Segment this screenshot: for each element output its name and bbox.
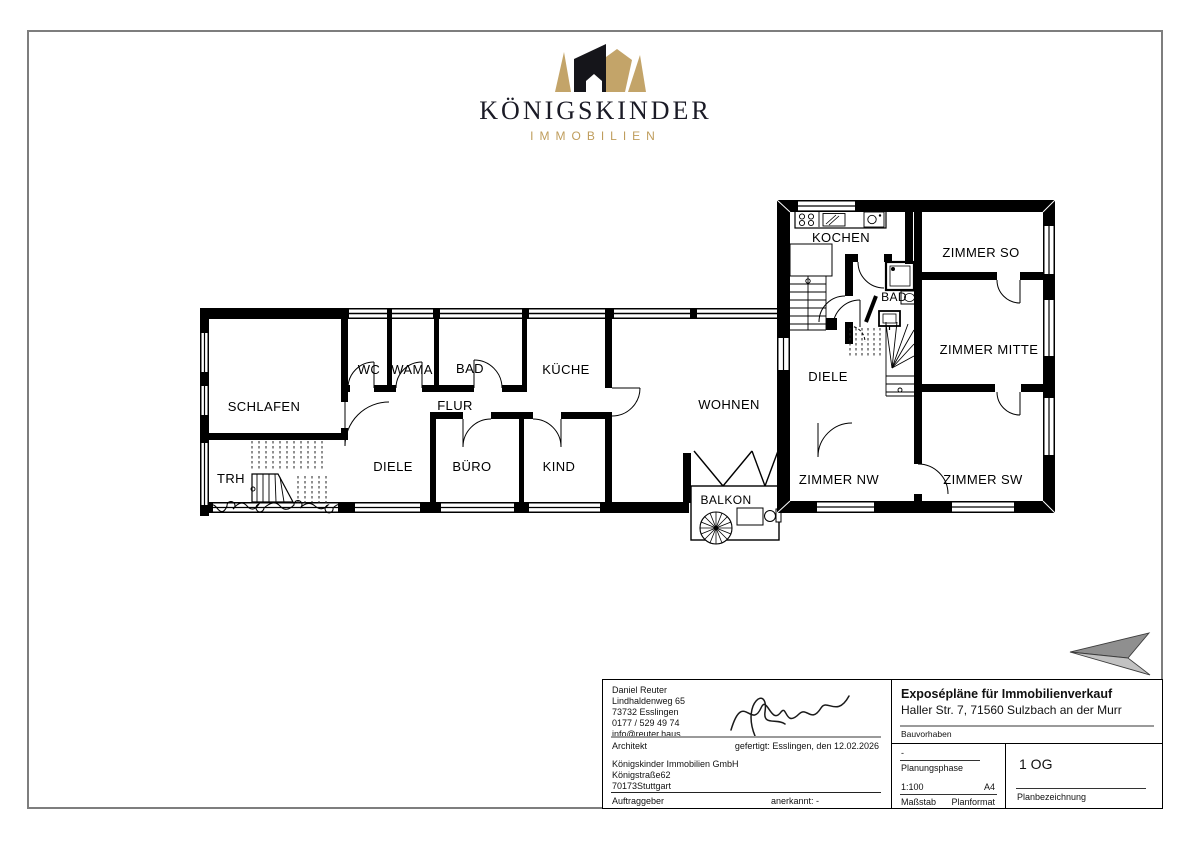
format-label: Planformat	[951, 797, 995, 807]
architect-street: Lindhaldenweg 65	[612, 696, 685, 707]
room-label-bad-right: BAD	[881, 290, 907, 304]
client-label: Auftraggeber	[612, 796, 664, 806]
room-label-zimmer-mitte: ZIMMER MITTE	[940, 342, 1039, 357]
signature-divider	[611, 736, 881, 738]
room-label-buero: BÜRO	[452, 459, 491, 474]
title-block-meta: - Planungsphase 1:100 A4 Maßstab Planfor…	[892, 743, 1162, 808]
plan-name-label: Planbezeichnung	[1017, 792, 1086, 802]
architect-name: Daniel Reuter	[612, 685, 685, 696]
architect-label: Architekt	[612, 741, 647, 751]
phase-scale-cell: - Planungsphase 1:100 A4 Maßstab Planfor…	[892, 744, 1006, 808]
client-street: Königstraße62	[612, 770, 739, 781]
project-title: Exposépläne für Immobilienverkauf	[901, 687, 1112, 701]
architect-email: info@reuter.haus	[612, 729, 685, 740]
scale-divider	[900, 794, 997, 795]
room-label-zimmer-so: ZIMMER SO	[942, 245, 1019, 260]
client-name: Königskinder Immobilien GmbH	[612, 759, 739, 770]
plan-name-cell: 1 OG Planbezeichnung	[1006, 744, 1162, 808]
approved-note: anerkannt: -	[771, 796, 819, 806]
room-label-wc: WC	[358, 362, 380, 377]
room-label-kind: KIND	[543, 459, 576, 474]
room-label-balkon: BALKON	[700, 493, 751, 507]
room-label-schlafen: SCHLAFEN	[228, 399, 301, 414]
room-label-bad-left: BAD	[456, 361, 484, 376]
phase-label: Planungsphase	[901, 763, 963, 773]
scale-label: Maßstab	[901, 797, 936, 807]
title-block-architect-section: Daniel Reuter Lindhaldenweg 65 73732 Ess…	[603, 680, 892, 808]
north-arrow-icon	[1070, 633, 1150, 675]
plan-name-value: 1 OG	[1019, 756, 1052, 772]
title-block-project-section: Exposépläne für Immobilienverkauf Haller…	[892, 680, 1162, 808]
room-label-diele-right: DIELE	[808, 369, 848, 384]
room-label-wohnen: WOHNEN	[698, 397, 760, 412]
spiral-stair-icon	[700, 512, 732, 544]
architect-city: 73732 Esslingen	[612, 707, 685, 718]
project-divider	[900, 725, 1154, 727]
room-label-wama: WAMA	[391, 362, 433, 377]
room-label-diele-left: DIELE	[373, 459, 413, 474]
project-label: Bauvorhaben	[901, 729, 952, 739]
trh-staircase	[251, 474, 293, 502]
client-divider	[611, 792, 881, 793]
phase-divider	[900, 760, 980, 761]
room-label-trh: TRH	[217, 471, 245, 486]
main-staircase	[790, 244, 832, 330]
project-address: Haller Str. 7, 71560 Sulzbach an der Mur…	[901, 703, 1122, 717]
room-label-flur: FLUR	[437, 398, 473, 413]
room-label-zimmer-sw: ZIMMER SW	[943, 472, 1023, 487]
room-label-kueche: KÜCHE	[542, 362, 590, 377]
headroom-dashed-lines	[850, 328, 880, 358]
room-label-kochen: KOCHEN	[812, 230, 870, 245]
kitchen-counter	[795, 211, 886, 228]
plan-name-divider	[1016, 788, 1146, 789]
format-value: A4	[984, 782, 995, 792]
phase-value: -	[901, 748, 904, 758]
winder-stair	[886, 322, 914, 396]
title-block: Daniel Reuter Lindhaldenweg 65 73732 Ess…	[602, 679, 1163, 809]
room-label-zimmer-nw: ZIMMER NW	[799, 472, 879, 487]
client-city: 70173Stuttgart	[612, 781, 739, 792]
architect-phone: 0177 / 529 49 74	[612, 718, 685, 729]
scale-value: 1:100	[901, 782, 924, 792]
prepared-note: gefertigt: Esslingen, den 12.02.2026	[735, 741, 879, 751]
plan-sheet: KÖNIGSKINDER IMMOBILIEN	[0, 0, 1191, 842]
architect-signature	[721, 684, 881, 738]
